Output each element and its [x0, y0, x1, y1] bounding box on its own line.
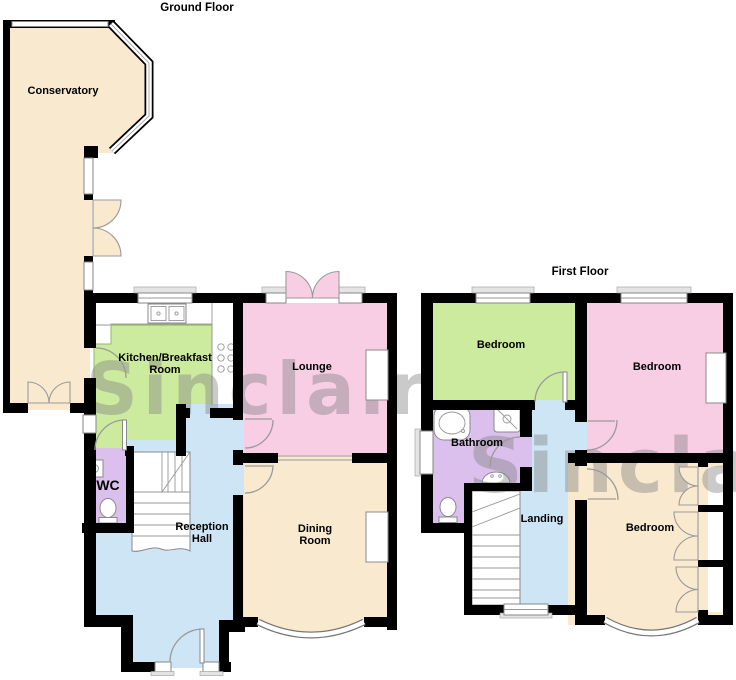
- lounge-label: Lounge: [292, 361, 332, 373]
- bathroom-label: Bathroom: [451, 437, 503, 449]
- dining-room-label: Dining Room: [298, 523, 332, 547]
- ground-floor-plan: Sinclair: [3, 20, 430, 676]
- bedroom-rear-label: Bedroom: [626, 522, 674, 534]
- kitchen-label-line1: Kitchen/Breakfast: [118, 352, 212, 364]
- kitchen-label-line2: Room: [118, 364, 212, 376]
- kitchen-label: Kitchen/Breakfast Room: [118, 352, 212, 376]
- wc-toilet-icon: [100, 499, 116, 518]
- first-floor-plan: Sinclair: [415, 287, 736, 633]
- conservatory-label: Conservatory: [28, 85, 99, 97]
- wardrobe-2: [708, 512, 723, 560]
- room-bedroom-left: [421, 293, 587, 410]
- dining-room-label-line2: Room: [298, 535, 332, 547]
- reception-hall-label-line1: Reception: [175, 521, 228, 533]
- bathroom-toilet-icon: [440, 498, 456, 517]
- bedroom-left-label: Bedroom: [477, 339, 525, 351]
- floorplan-image: Sinclair: [0, 0, 736, 680]
- lounge-chimney: [366, 350, 388, 400]
- first-floor-title: First Floor: [552, 266, 609, 278]
- floorplan-svg: Sinclair: [0, 0, 736, 680]
- bedroom-chimney: [706, 353, 726, 403]
- landing-label: Landing: [521, 513, 564, 525]
- reception-hall-label-line2: Hall: [175, 533, 228, 545]
- bedroom-right-label: Bedroom: [633, 361, 681, 373]
- dining-room-label-line1: Dining: [298, 523, 332, 535]
- wc-label: WC: [96, 479, 119, 491]
- wardrobe-3: [708, 567, 723, 612]
- ground-floor-title: Ground Floor: [160, 2, 233, 14]
- reception-hall-label: Reception Hall: [175, 521, 228, 545]
- dining-chimney: [366, 512, 388, 562]
